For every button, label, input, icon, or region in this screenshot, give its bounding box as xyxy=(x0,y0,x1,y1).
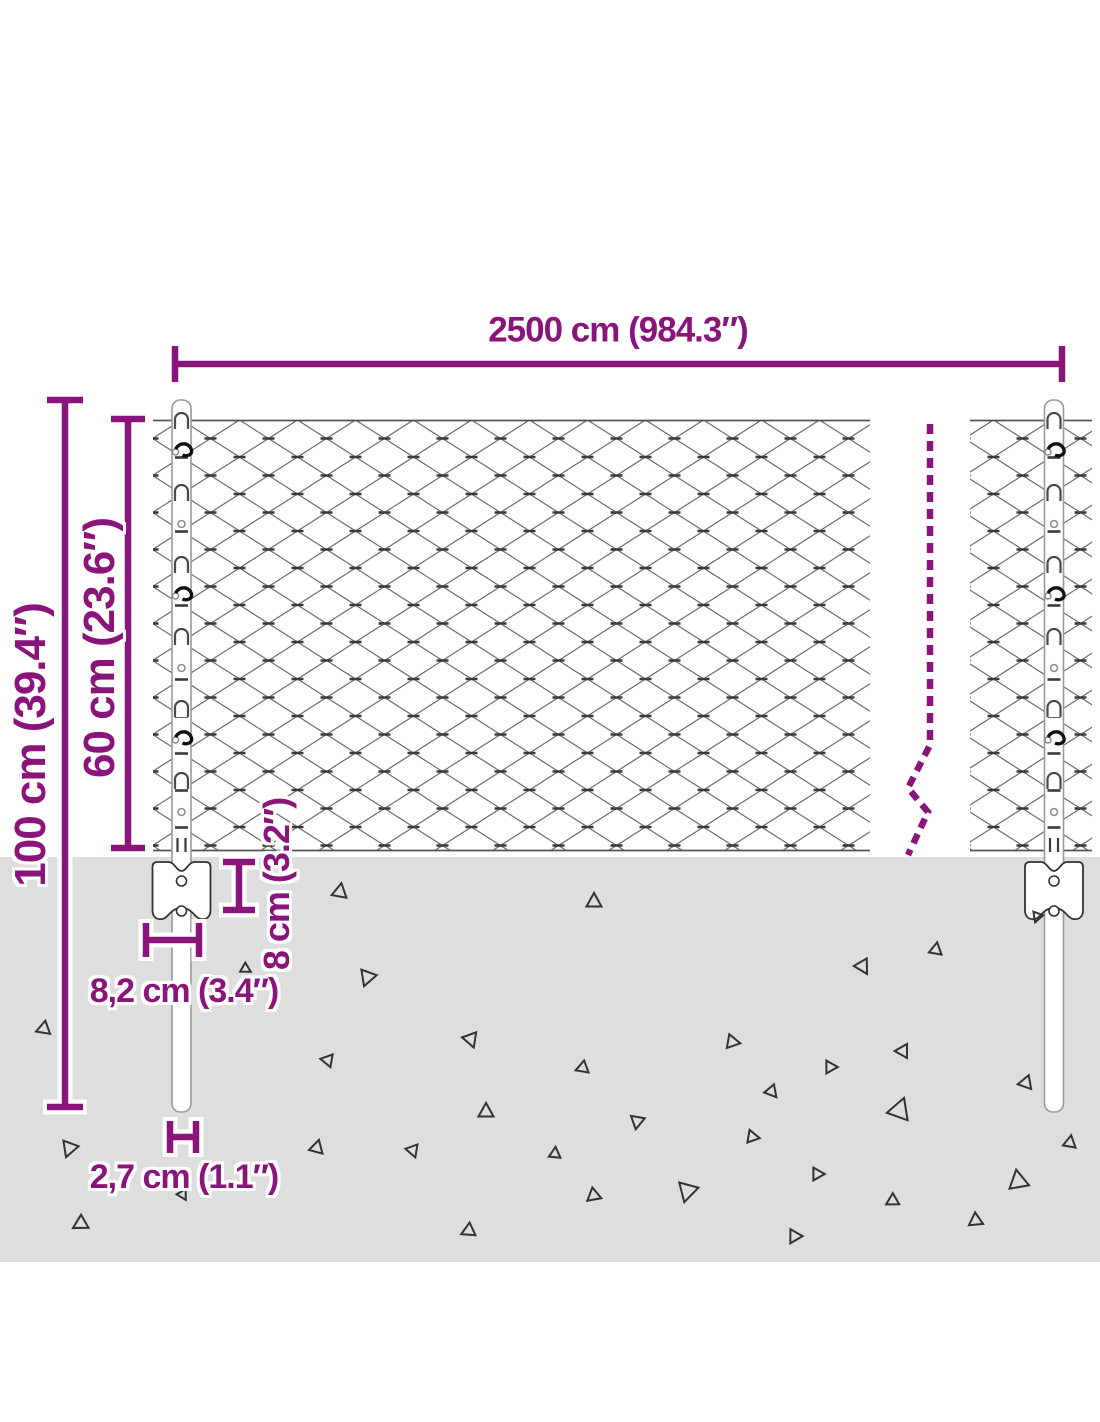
post-hook xyxy=(1048,557,1061,573)
post-hook xyxy=(1048,701,1061,717)
plate-hole xyxy=(177,876,187,886)
dimension-label-mesh-height: 60 cm (23.6″) xyxy=(78,518,122,778)
wire-tie-eye xyxy=(173,449,179,455)
post-rivet xyxy=(178,521,185,528)
dimension-label-post-width: 2,7 cm (1.1″) xyxy=(90,1160,279,1194)
wire-tie-eye xyxy=(173,593,179,599)
post-hook xyxy=(1048,485,1061,501)
post-hook xyxy=(175,557,188,573)
wire-tie-eye xyxy=(173,737,179,743)
wire-tie-eye xyxy=(1045,449,1051,455)
dimension-label-total-width: 2500 cm (984.3″) xyxy=(488,313,748,348)
wire-tie-eye xyxy=(1045,737,1051,743)
post-hook xyxy=(175,413,188,429)
plate-hole xyxy=(1049,906,1059,916)
post-hook xyxy=(1048,413,1061,429)
post-rivet xyxy=(178,665,185,672)
post-rivet xyxy=(178,809,185,816)
fence-dimension-diagram: 2500 cm (984.3″) 100 cm (39.4″) 60 cm (2… xyxy=(0,0,1100,1422)
post-hook xyxy=(1048,773,1061,789)
dimension-label-anchor-width: 8,2 cm (3.4″) xyxy=(90,974,279,1008)
plate-hole xyxy=(177,906,187,916)
post-hook xyxy=(175,629,188,645)
post-rivet xyxy=(1051,809,1058,816)
post-hook xyxy=(175,773,188,789)
post-rivet xyxy=(1051,521,1058,528)
post-hook xyxy=(1048,629,1061,645)
wire-tie-eye xyxy=(1045,593,1051,599)
right-fence-post xyxy=(1045,400,1065,1112)
dimension-label-total-height: 100 cm (39.4″) xyxy=(9,603,53,886)
left-anchor-plate xyxy=(153,862,211,919)
post-hook xyxy=(175,485,188,501)
break-line xyxy=(908,424,930,855)
diagram-scene xyxy=(0,0,1100,1422)
post-rivet xyxy=(1051,665,1058,672)
right-anchor-plate xyxy=(1025,862,1083,919)
post-hook xyxy=(175,701,188,717)
chain-link-mesh xyxy=(153,420,1092,851)
plate-hole xyxy=(1049,876,1059,886)
dimension-label-anchor-depth: 8 cm (3.2″) xyxy=(259,798,295,970)
